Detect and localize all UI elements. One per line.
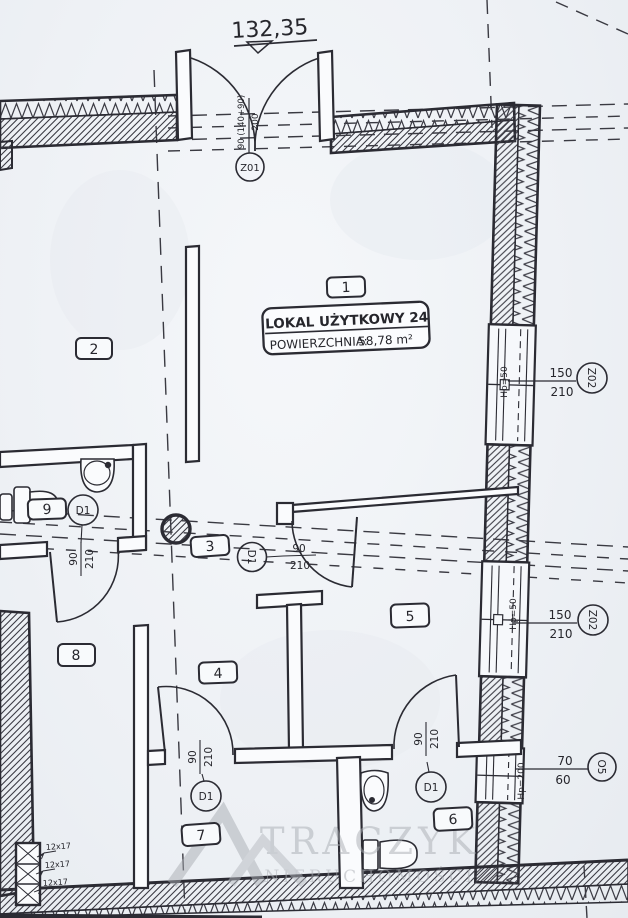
sink-room9 [81, 459, 114, 492]
door-height: 210 [84, 549, 96, 569]
window-sill-height: Hp=50 [500, 366, 510, 398]
entrance-dim-bottom: 200 [251, 113, 261, 130]
door-width: 90 [68, 552, 80, 565]
wall-top-right [331, 103, 515, 153]
window-z02-2 [479, 561, 529, 677]
door-code: D1 [76, 505, 91, 517]
door-width: 90 [292, 543, 305, 555]
wall-room2-room1 [186, 246, 199, 462]
window-width: 150 [549, 608, 572, 622]
room-number-3: 3 [205, 539, 215, 556]
wall-bottom-corridor-a [148, 750, 165, 765]
window-width: 150 [550, 366, 573, 380]
window-label-o5: 70 60 O5 Hp=200 [516, 753, 616, 800]
window-code: Z02 [586, 610, 598, 631]
window-height: 210 [550, 627, 573, 641]
duct-label: 12x17 [46, 841, 72, 852]
door-label-room5: D1 90 210 [238, 543, 317, 573]
room-number-8: 8 [72, 648, 81, 664]
door-height: 210 [429, 729, 441, 749]
room-number-7: 7 [196, 828, 206, 845]
room-number-1: 1 [341, 280, 350, 296]
room-number-2: 2 [90, 342, 99, 358]
window-z02-1 [486, 324, 536, 445]
door-label-room9: D1 90 210 [68, 495, 98, 576]
window-width: 70 [557, 754, 572, 768]
window-sill-height: Hp=200 [517, 762, 527, 799]
entrance-dim-top: 90 (140+90) [237, 95, 247, 149]
floor-plan-scan: TRACZYK NIERUCHOMOŚCI 132,35 90 (140+90)… [0, 0, 628, 918]
room-number-4: 4 [213, 666, 223, 682]
wall-bottom-corridor-b [235, 745, 392, 763]
window-sill-height: Hp=50 [509, 598, 519, 630]
wall-room9-bottom-left [0, 542, 47, 559]
window-code: Z02 [585, 368, 597, 389]
wall-room8-right [134, 625, 148, 888]
wall-room4-room5 [287, 604, 303, 751]
door-label-room6: D1 90 210 [413, 722, 446, 802]
wall-jamb-room5 [277, 503, 293, 524]
duct-label: 12x17 [43, 877, 69, 888]
wall-room5-top [279, 487, 518, 513]
unit-label-box: LOKAL UŻYTKOWY 24 POWIERZCHNIA: 58,78 m² [262, 301, 430, 354]
entrance-double-door [176, 50, 334, 151]
window-height: 210 [551, 385, 574, 399]
door-height: 210 [203, 747, 215, 767]
watermark-subtitle: NIERUCHOMOŚCI [264, 866, 475, 887]
door-label-room7: D1 90 210 [187, 740, 221, 811]
door-code: D1 [424, 782, 439, 794]
window-height: 60 [555, 773, 570, 787]
structural-column [162, 515, 190, 543]
unit-area-value: 58,78 m² [358, 332, 413, 348]
entrance-code: Z01 [240, 163, 260, 174]
room-number-6: 6 [448, 812, 458, 828]
total-dimension: 132,35 [231, 15, 317, 53]
door-width: 90 [187, 750, 199, 763]
door-height: 210 [290, 560, 310, 572]
window-code: O5 [595, 760, 607, 775]
door-width: 90 [413, 732, 425, 745]
door-code: D1 [245, 550, 257, 565]
room-number-9: 9 [42, 502, 51, 518]
duct-label: 12x17 [45, 859, 71, 870]
wall-top-left [0, 95, 177, 170]
wall-room9-bottom-right [118, 536, 146, 552]
floor-plan-drawing: TRACZYK NIERUCHOMOŚCI 132,35 90 (140+90)… [0, 0, 628, 918]
total-dimension-value: 132,35 [231, 15, 309, 44]
wall-room9-right [133, 444, 146, 550]
room-number-5: 5 [405, 609, 414, 625]
wall-bottom-corridor-c [457, 740, 521, 757]
sink-room6 [361, 771, 388, 812]
door-code: D1 [199, 791, 214, 803]
